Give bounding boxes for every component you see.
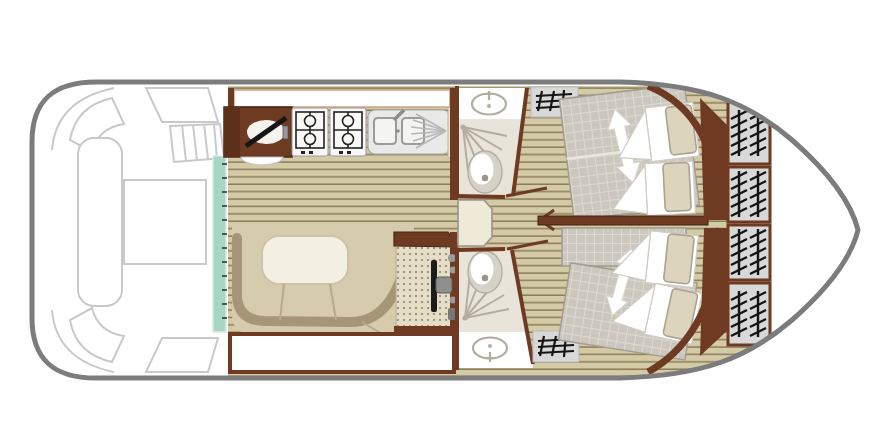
cabin-divider-wall xyxy=(538,216,708,225)
stern-lockers xyxy=(728,102,770,345)
helm-console xyxy=(394,232,458,335)
pillow xyxy=(665,104,697,155)
toilet-icon xyxy=(468,151,502,193)
sink-icon xyxy=(368,110,450,154)
floor-plan-canvas xyxy=(0,0,890,446)
entry-sliding-door xyxy=(213,156,227,332)
corridor-wardrobe xyxy=(458,200,492,246)
vent-locker xyxy=(728,167,770,222)
pillow xyxy=(663,234,694,284)
vent-locker xyxy=(728,225,770,280)
deck-table xyxy=(124,180,206,264)
salon-table xyxy=(262,236,348,284)
boat-floor-plan xyxy=(0,0,890,446)
pillow xyxy=(663,162,691,211)
salon-storage-box xyxy=(230,334,454,372)
vent-locker xyxy=(728,283,770,345)
deck-bench xyxy=(78,138,122,306)
toilet-icon xyxy=(468,251,502,293)
galley-window xyxy=(234,90,450,107)
galley xyxy=(224,88,456,165)
